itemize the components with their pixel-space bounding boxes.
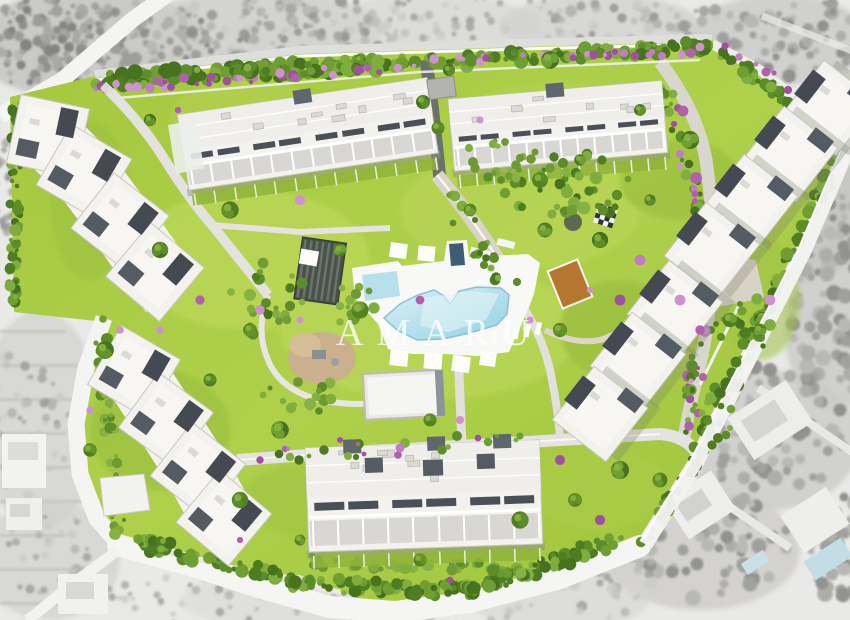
svg-text:AMARU: AMARU [336,312,542,354]
svg-text:®: ® [521,321,529,333]
